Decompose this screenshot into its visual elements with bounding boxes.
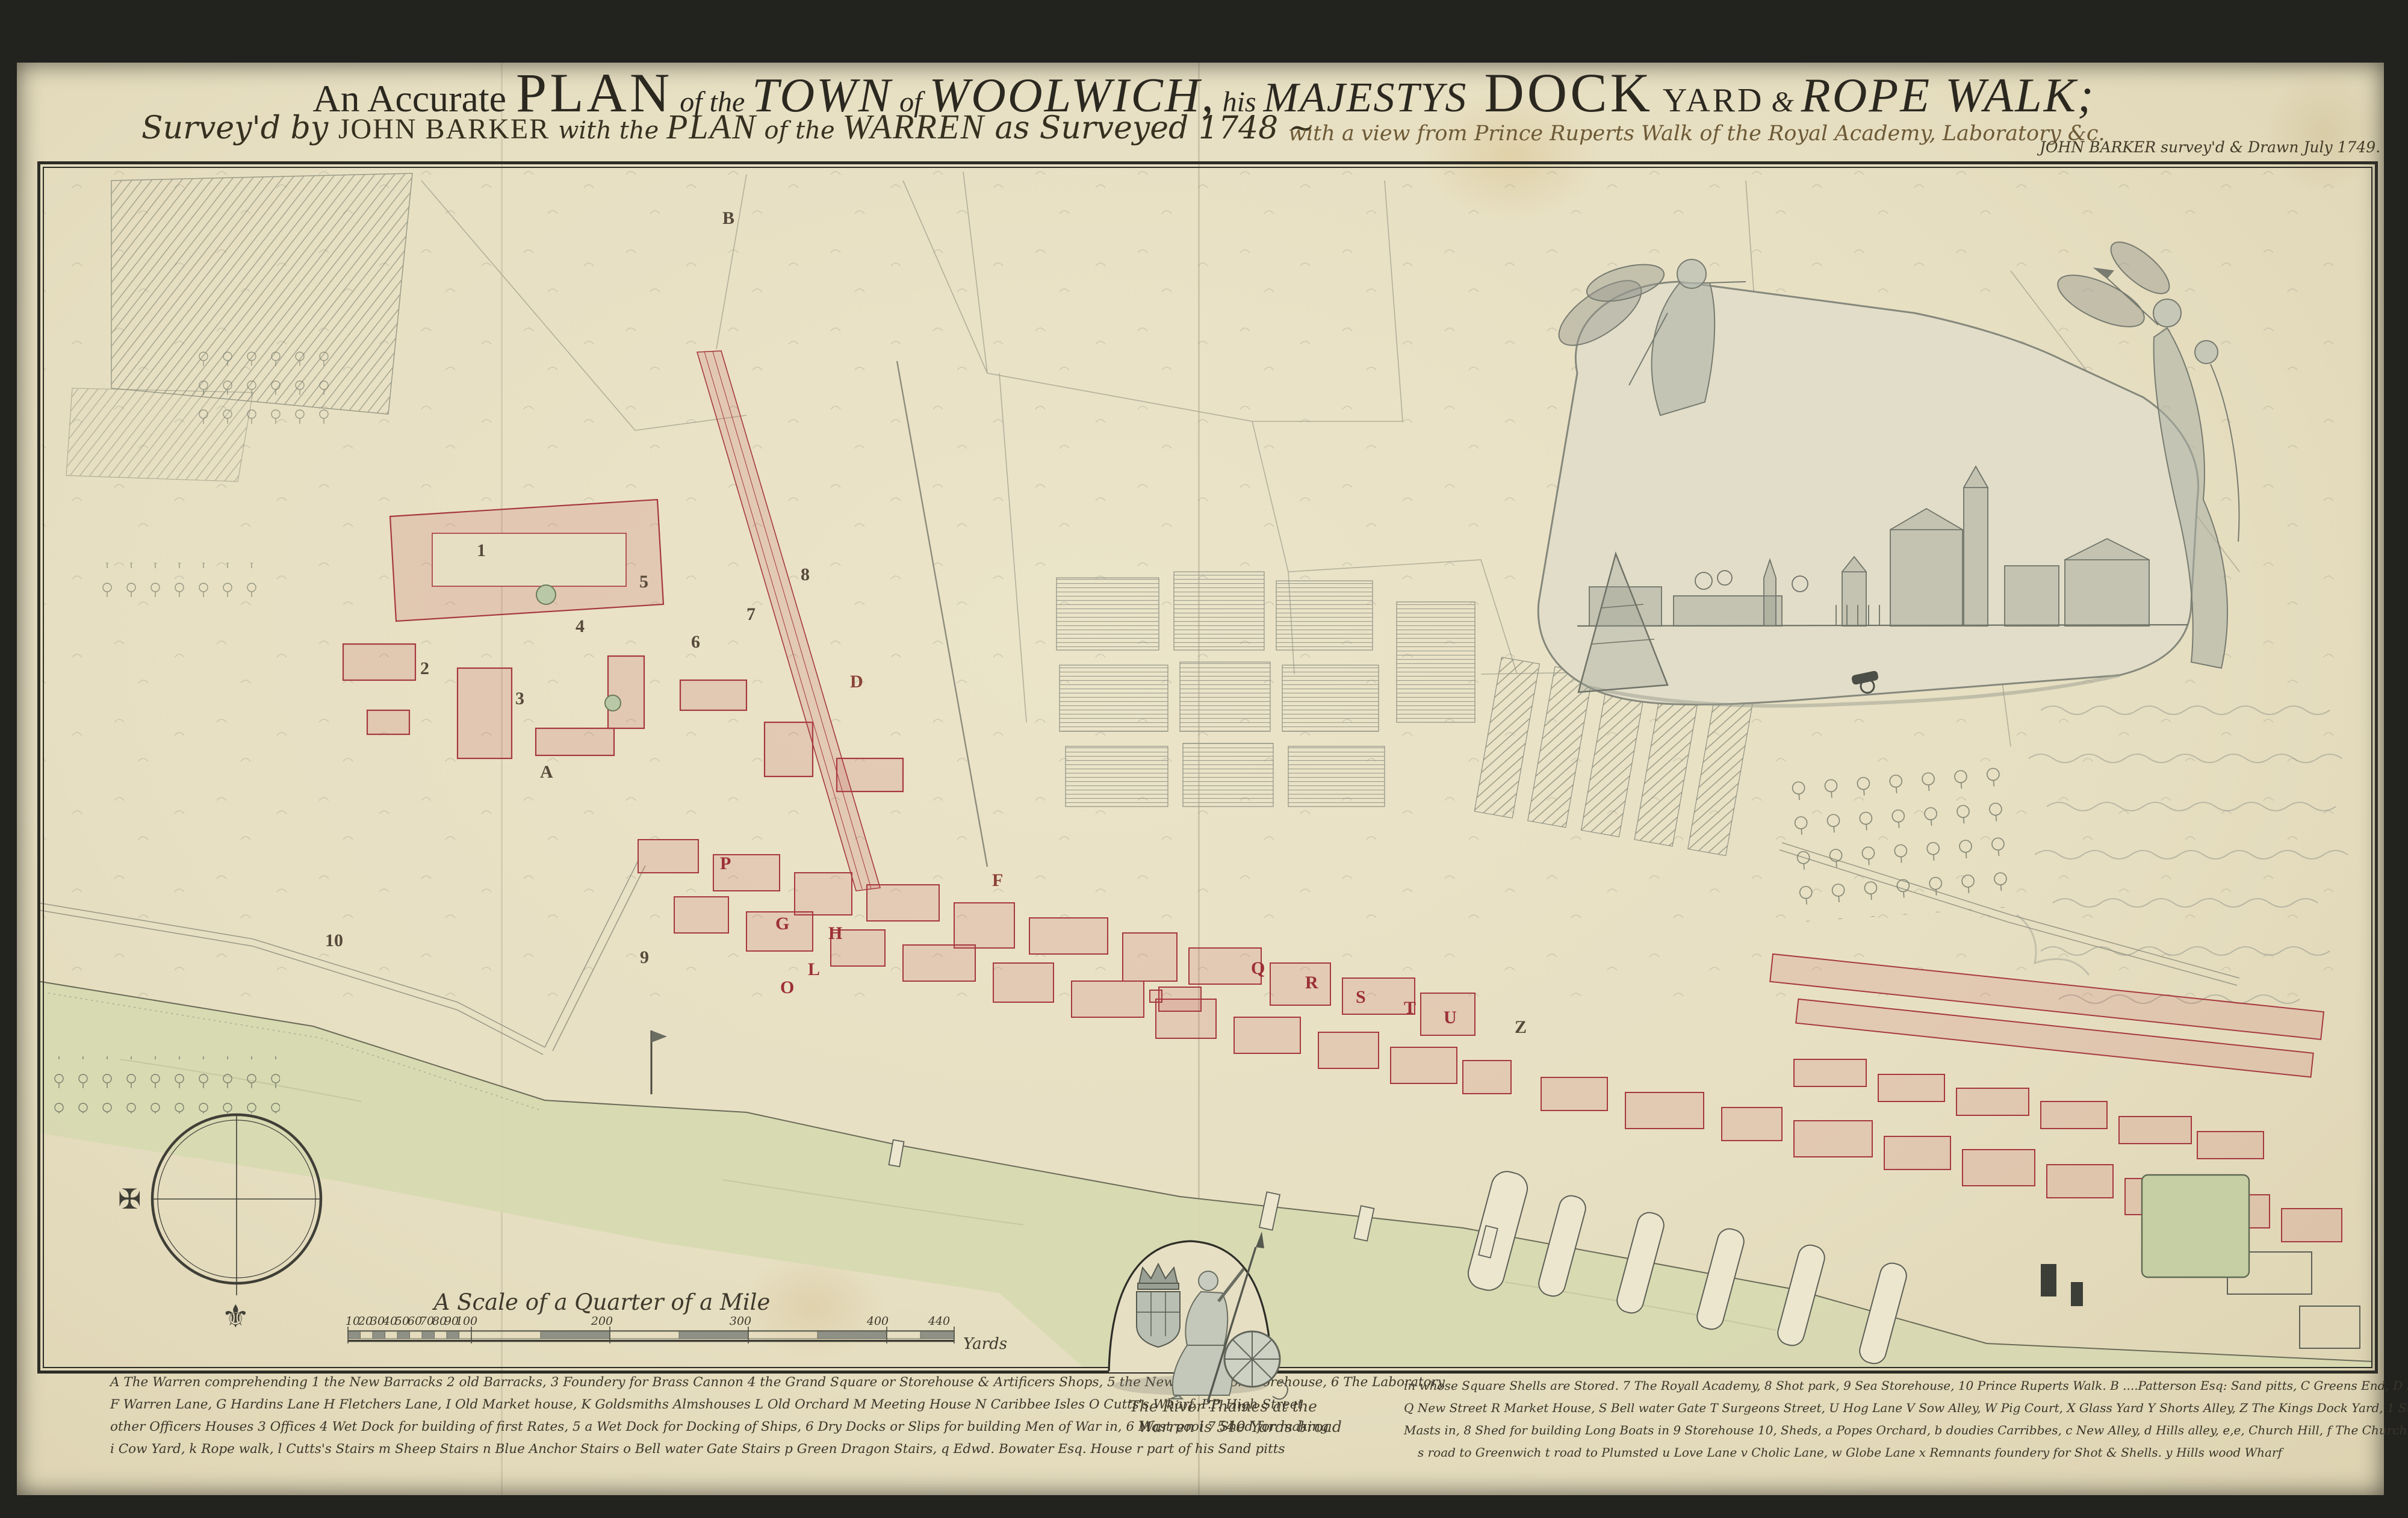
legend-line2-right: Q New Street R Market House, S Bell wate… [1404,1402,2408,1414]
scale-caption: A Scale of a Quarter of a Mile [421,1289,783,1315]
scale-tick-300: 300 [730,1315,751,1328]
map-label-P: P [720,855,731,873]
map-label-F: F [992,872,1003,890]
map-label-U: U [1444,1009,1457,1027]
title-segment: YARD [1653,82,1764,119]
map-label-L: L [808,961,820,979]
subtitle-segment: of the [757,117,843,144]
legend-line3-left: other Officers Houses 3 Offices 4 Wet Do… [110,1420,1329,1434]
map-label-Q: Q [1251,959,1265,977]
compass-rose: ✠ ⚜ [117,1097,370,1337]
map-label-3: 3 [515,690,524,708]
map-label-8: 8 [801,566,810,584]
subtitle-segment: Survey'd by [141,110,338,146]
subtitle-segment: JOHN BARKER [338,113,558,145]
map-label-R: R [1305,974,1318,992]
legend-line4-left: i Cow Yard, k Rope walk, l Cutts's Stair… [110,1443,1285,1456]
map-label-2: 2 [420,660,429,678]
map-label-7: 7 [746,606,756,624]
scale-tick-200: 200 [591,1315,613,1328]
map-label-T: T [1404,999,1416,1017]
map-canvas [37,161,2372,1368]
map-label-9: 9 [640,949,649,967]
map-label-D: D [850,673,863,691]
map-label-1: 1 [477,542,486,560]
legend-line4-right: s road to Greenwich t road to Plumsted u… [1418,1446,2282,1458]
subtitle-segment: as Surveyed 1748 ~ [985,110,1314,146]
legend-line3-right: Masts in, 8 Shed for building Long Boats… [1404,1424,2408,1436]
title-segment: DOCK [1467,62,1653,123]
map-label-O: O [780,979,794,997]
flagstaff [651,1030,667,1094]
title-segment: & [1764,86,1801,118]
scale-tick-400: 400 [867,1315,889,1328]
title-segment: ROPE WALK; [1801,69,2096,122]
scale-tick-440: 440 [928,1315,950,1328]
view-note: with a view from Prince Ruperts Walk of … [1288,122,2105,146]
map-sheet: An Accurate PLAN of the TOWN of WOOLWICH… [0,0,2408,1518]
map-subtitle: Survey'd by JOHN BARKER with the PLAN of… [141,110,1314,144]
subtitle-segment: with the [558,117,666,144]
map-label-H: H [828,925,842,943]
scale-tick-Yards: Yards [963,1335,1007,1353]
subtitle-segment: WARREN [842,107,985,146]
map-label-B: B [722,209,734,228]
legend-line1-right: in whose Square Shells are Stored. 7 The… [1404,1380,2408,1392]
mast-pond [2142,1175,2249,1277]
east-cross-icon: ✠ [118,1183,141,1215]
scale-bar [348,1327,954,1343]
subtitle-segment: PLAN [666,107,757,146]
map-label-4: 4 [576,618,585,636]
surveyor-signature: JOHN BARKER survey'd & Drawn July 1749. [2040,138,2380,156]
map-label-Z: Z [1515,1018,1527,1036]
map-label-A: A [540,763,553,781]
map-label-G: G [775,915,789,933]
north-fleur-icon: ⚜ [222,1299,250,1335]
map-label-5: 5 [639,573,648,591]
britannia-vignette [1084,1222,1288,1408]
royal-arms [1137,1264,1180,1347]
scale-tick-100: 100 [456,1315,477,1328]
map-label-6: 6 [691,633,700,651]
map-label-S: S [1356,988,1366,1006]
map-label-10: 10 [325,932,343,950]
